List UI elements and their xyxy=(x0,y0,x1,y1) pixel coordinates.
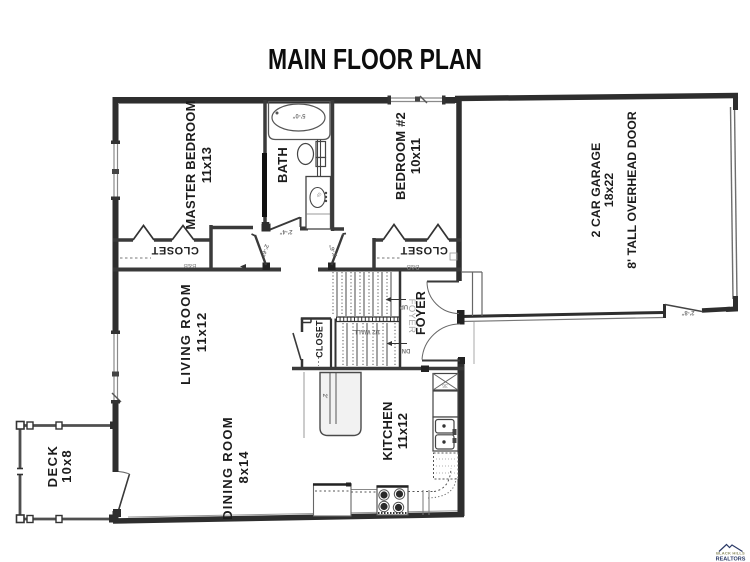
svg-text:MAIN FLOOR PLAN: MAIN FLOOR PLAN xyxy=(268,44,482,76)
svg-text:DN: DN xyxy=(402,347,411,353)
svg-text:10x8: 10x8 xyxy=(59,449,74,483)
svg-text:10x11: 10x11 xyxy=(408,138,423,174)
svg-text:BEDROOM #2: BEDROOM #2 xyxy=(393,112,408,200)
svg-text:FOYER: FOYER xyxy=(414,291,428,335)
svg-text:8x14: 8x14 xyxy=(236,451,251,484)
svg-text:DECK: DECK xyxy=(45,445,60,488)
svg-text:36: 36 xyxy=(442,382,448,388)
svg-text:B&B: B&B xyxy=(406,263,419,270)
svg-text:11x13: 11x13 xyxy=(199,147,214,183)
svg-text:LIVING ROOM: LIVING ROOM xyxy=(178,283,193,385)
svg-text:CLOSET: CLOSET xyxy=(315,320,325,358)
svg-text:8' TALL OVERHEAD DOOR: 8' TALL OVERHEAD DOOR xyxy=(625,111,639,269)
svg-text:REALTORS: REALTORS xyxy=(716,557,746,562)
svg-text:11x12: 11x12 xyxy=(395,413,410,449)
svg-text:DINING ROOM: DINING ROOM xyxy=(220,416,235,520)
svg-text:18x22: 18x22 xyxy=(602,173,616,208)
svg-text:CLOSET: CLOSET xyxy=(400,244,448,256)
svg-text:2'-8": 2'-8" xyxy=(681,309,694,315)
svg-text:2': 2' xyxy=(321,394,327,399)
svg-text:CLOSET: CLOSET xyxy=(151,244,199,256)
svg-text:MASTER BEDROOM: MASTER BEDROOM xyxy=(183,100,198,229)
svg-text:BLACK HILLS: BLACK HILLS xyxy=(716,551,745,556)
svg-text:BATH: BATH xyxy=(275,147,290,183)
svg-text:2 CAR GARAGE: 2 CAR GARAGE xyxy=(589,143,603,238)
svg-text:11x12: 11x12 xyxy=(194,312,209,352)
svg-text:5'-0": 5'-0" xyxy=(292,112,305,118)
svg-text:KITCHEN: KITCHEN xyxy=(380,401,395,460)
svg-text:2'-4": 2'-4" xyxy=(279,228,292,234)
